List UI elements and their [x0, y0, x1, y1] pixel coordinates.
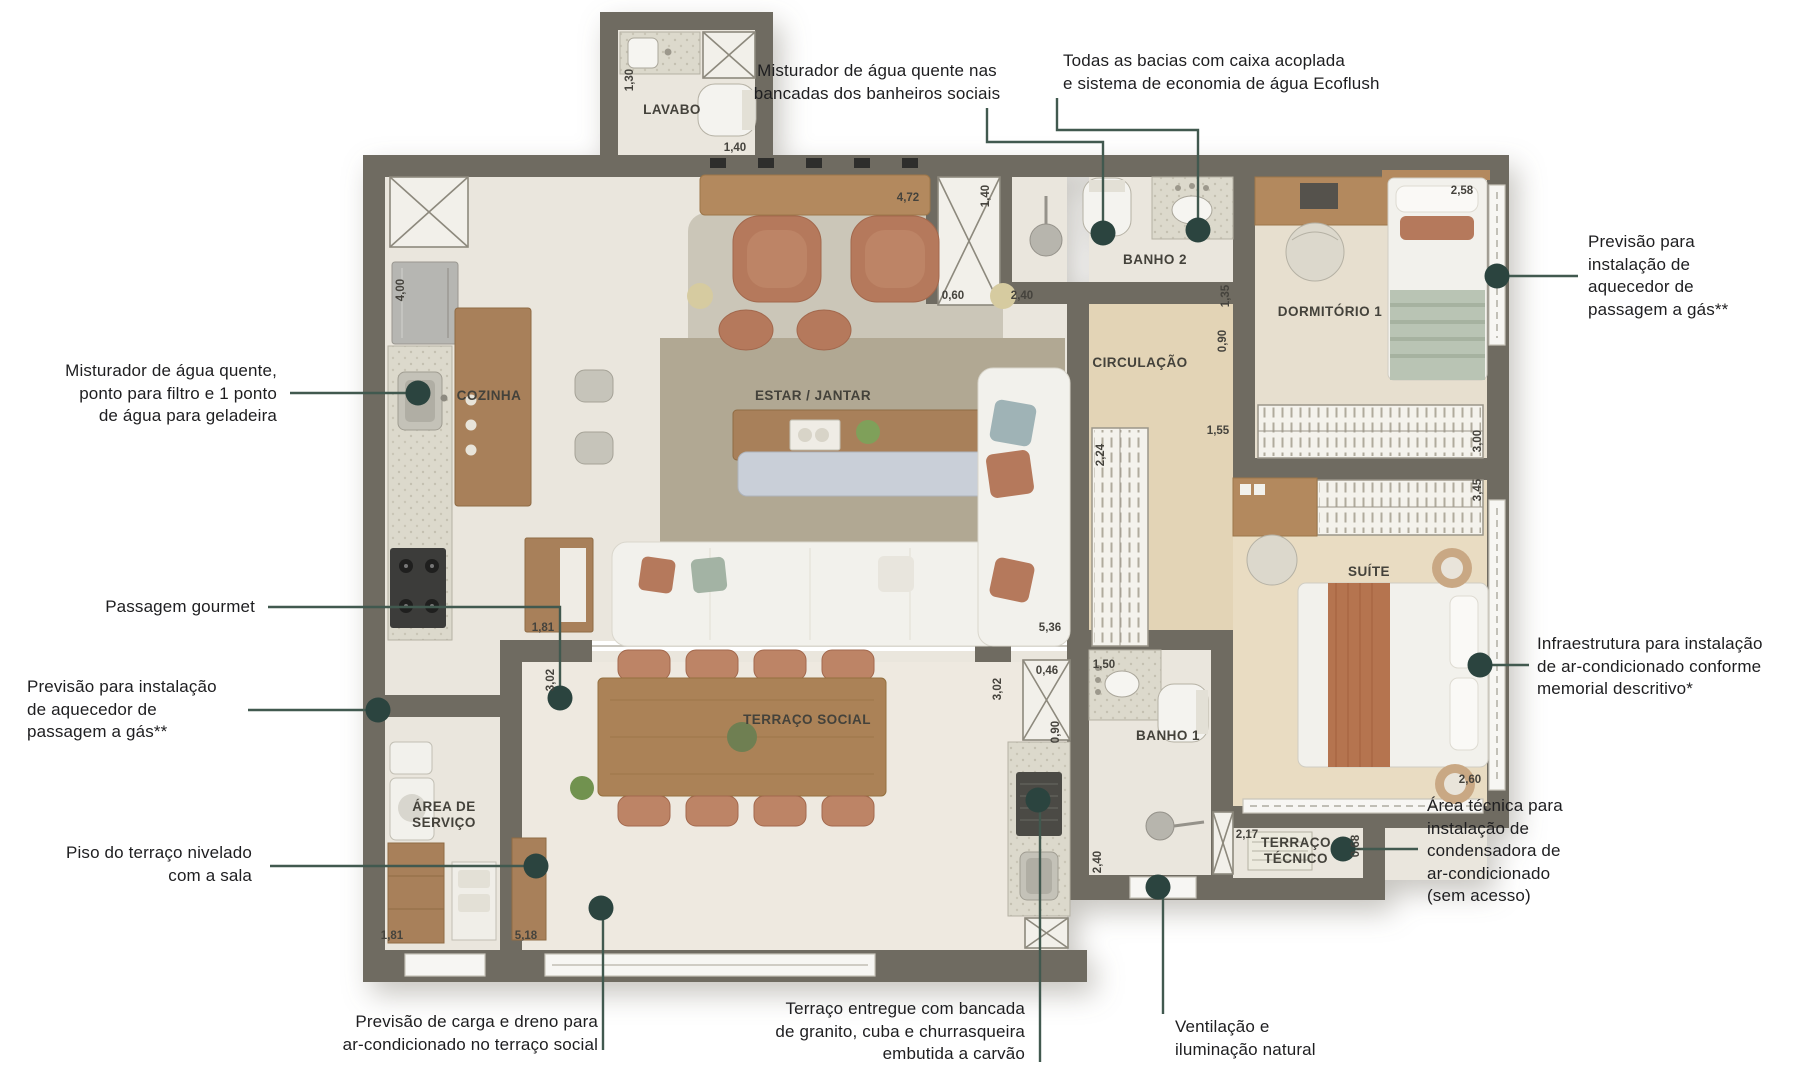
floor-plan — [0, 0, 1810, 1084]
callout-dot-infraestrutura-ar — [1468, 653, 1493, 678]
floorplan-page: LAVABOCOZINHAESTAR / JANTARCIRCULAÇÃOBAN… — [0, 0, 1810, 1084]
callout-dot-misturador-cozinha — [406, 381, 431, 406]
callout-dot-passagem-gourmet — [548, 686, 573, 711]
callout-dot-bacias-ecoflush — [1186, 218, 1211, 243]
callout-dot-ventilacao-natural — [1146, 875, 1171, 900]
technical-terrace-fixtures — [1248, 832, 1312, 870]
shelf-unit-circulacao — [1092, 428, 1148, 646]
wardrobe-suite — [1317, 480, 1483, 535]
callout-dot-aquecedor-gas-esquerda — [366, 698, 391, 723]
shaft-box — [1025, 918, 1068, 948]
shaft-box — [390, 177, 468, 247]
callout-dot-area-tecnica-condensadora — [1331, 837, 1356, 862]
floor-plan-drawing — [363, 12, 1509, 982]
callout-dot-piso-terraco — [524, 854, 549, 879]
shaft-box — [703, 32, 755, 78]
callout-dot-misturador-banheiros — [1091, 221, 1116, 246]
shaft-box — [1213, 812, 1233, 874]
callout-dot-carga-dreno-ar — [589, 896, 614, 921]
shaft-box — [1023, 660, 1070, 740]
callout-dot-terraco-bancada — [1026, 788, 1051, 813]
shaft-box — [938, 177, 1000, 305]
wardrobe-dormitorio — [1258, 405, 1483, 458]
callout-dot-aquecedor-gas-direita — [1485, 264, 1510, 289]
